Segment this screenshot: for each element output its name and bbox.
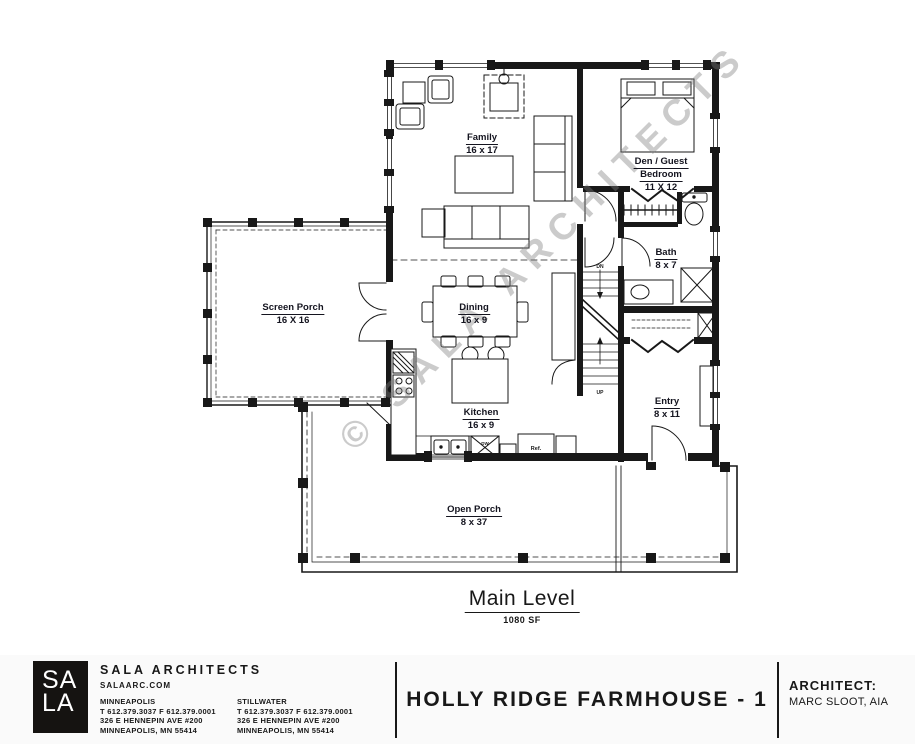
office-address1: 326 E HENNEPIN AVE #200	[100, 716, 216, 726]
stairs-dn-label: DN	[596, 264, 604, 270]
office-stillwater: STILLWATER T 612.379.3037 F 612.379.0001…	[237, 697, 353, 735]
room-label-screen-porch: Screen Porch 16 X 16	[261, 302, 324, 327]
firm-website: SALAARC.COM	[100, 681, 171, 690]
office-city: STILLWATER	[237, 697, 353, 707]
sala-logo: SA LA	[33, 661, 88, 733]
firm-name: SALA ARCHITECTS	[100, 663, 262, 677]
plan-title: Main Level	[465, 587, 580, 613]
architect-name: MARC SLOOT, AIA	[789, 696, 888, 708]
sala-logo-line2: LA	[42, 692, 88, 715]
titleblock-divider-right	[777, 662, 779, 738]
room-label-dining: Dining 16 x 9	[458, 302, 490, 327]
plan-title-block: Main Level 1080 SF	[465, 587, 580, 625]
drawing-sheet: { "plan": { "watermark": "© SALA ARCHITE…	[0, 0, 915, 744]
refrigerator-label: Ref.	[531, 446, 542, 452]
room-label-open-porch: Open Porch 8 x 37	[446, 504, 502, 529]
project-title: HOLLY RIDGE FARMHOUSE - 1	[397, 688, 777, 712]
office-address2: MINNEAPOLIS, MN 55414	[237, 726, 353, 736]
title-block: SA LA SALA ARCHITECTS SALAARC.COM MINNEA…	[0, 655, 915, 744]
architect-block: ARCHITECT: MARC SLOOT, AIA	[789, 678, 888, 708]
office-address1: 326 E HENNEPIN AVE #200	[237, 716, 353, 726]
office-phone: T 612.379.3037 F 612.379.0001	[237, 707, 353, 717]
family-furniture	[396, 66, 572, 248]
stairs-up-label: UP	[597, 390, 605, 396]
kitchen-fixtures: Ref. DW	[391, 347, 576, 460]
plan-area: 1080 SF	[465, 615, 580, 625]
dishwasher-label: DW	[481, 441, 489, 446]
office-minneapolis: MINNEAPOLIS T 612.379.3037 F 612.379.000…	[100, 697, 216, 735]
open-porch-structure	[298, 402, 737, 572]
room-label-kitchen: Kitchen 16 x 9	[463, 407, 500, 432]
stairs: DN UP	[552, 264, 618, 396]
office-phone: T 612.379.3037 F 612.379.0001	[100, 707, 216, 717]
room-label-bath: Bath 8 x 7	[654, 247, 677, 272]
room-label-entry: Entry 8 x 11	[654, 396, 680, 421]
room-label-den-guest-bedroom: Den / Guest Bedroom 11 X 12	[634, 156, 689, 194]
room-label-family: Family 16 x 17	[466, 132, 498, 157]
architect-label: ARCHITECT:	[789, 678, 888, 693]
office-city: MINNEAPOLIS	[100, 697, 216, 707]
office-address2: MINNEAPOLIS, MN 55414	[100, 726, 216, 736]
